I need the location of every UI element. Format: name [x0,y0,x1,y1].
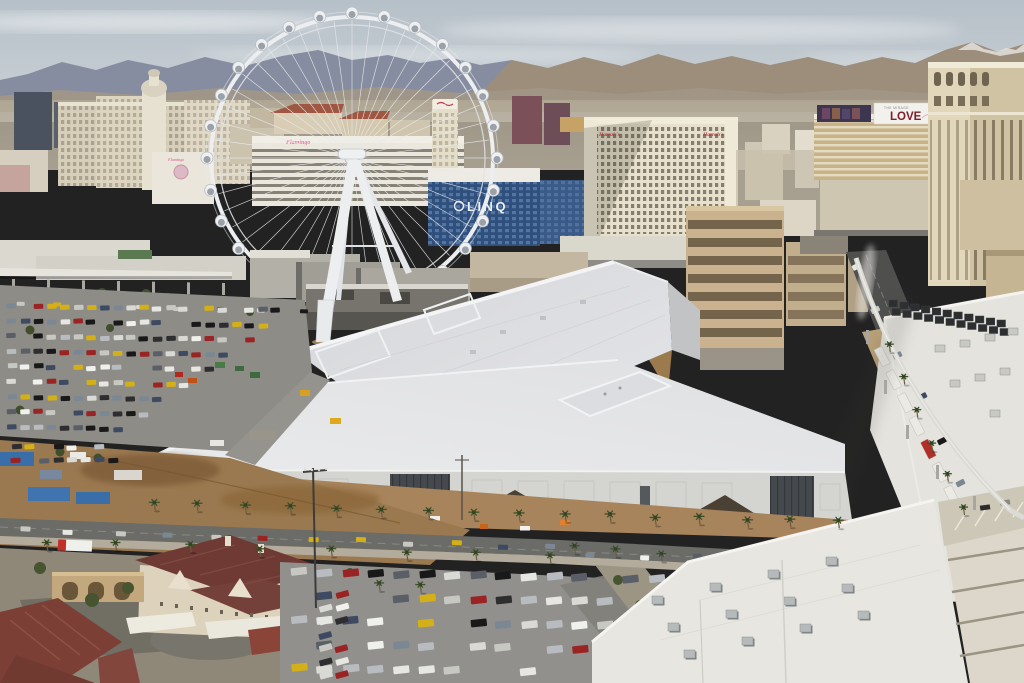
wheel-pod [215,215,227,227]
parked-car [179,383,189,388]
parked-car [33,409,43,414]
hvac-dark-unit [943,310,952,317]
parked-car [87,396,97,401]
parked-car [191,352,201,357]
parked-car [20,364,30,369]
wheel-pod [409,21,421,33]
parked-car [191,336,201,341]
vehicle [17,302,25,306]
hvac-dark-unit [997,320,1006,327]
parked-car [166,382,176,387]
vehicle [20,526,30,531]
parked-car [8,394,18,399]
parked-car [74,334,84,339]
parked-car [178,351,188,356]
parked-car [152,397,162,402]
vehicle [403,542,413,547]
aerial-photo-las-vegas-strip: Flamingo Flamingo LINQ [0,0,1024,683]
wheel-pod [256,39,268,51]
wheel-pod [378,11,390,23]
parked-car [7,349,17,354]
parked-car [34,363,44,368]
hvac-dark-unit [914,313,923,320]
parked-car [46,425,56,430]
hvac-dark-unit [986,318,995,325]
parked-car [61,396,71,401]
flamingo-heart-logo [174,165,188,179]
parked-car [113,320,123,325]
mirage-show-billboard [817,105,871,122]
parked-car [66,445,76,451]
parked-car [140,352,150,357]
hvac-box [710,583,723,593]
parked-car [205,322,215,327]
hvac-box [800,624,813,634]
parked-car [100,395,110,400]
parked-car [74,396,84,401]
parked-car [178,336,188,341]
vehicle [545,544,555,549]
parked-car [20,409,30,414]
hvac-dark-unit [978,325,987,332]
wheel-pod [215,89,227,101]
parked-car [61,335,71,340]
wheel-pod [487,120,499,132]
parked-car [126,351,136,356]
parked-car [54,457,64,463]
parked-car [33,349,43,354]
parked-car [191,366,201,371]
parked-car [152,306,162,311]
parked-car [178,307,188,312]
parked-car [166,336,176,341]
parked-car [7,424,17,429]
hvac-dark-unit [954,312,963,319]
hvac-box [684,650,697,660]
parked-car [8,363,18,368]
parked-car [114,335,124,340]
parked-car [7,409,17,414]
parked-car [153,337,163,342]
hvac-dark-unit [924,315,933,322]
parked-car [217,337,227,342]
parked-car [100,364,110,369]
hvac-box [668,623,681,633]
linq-hotel: LINQ [428,168,592,246]
parked-car [59,350,69,355]
vehicle [257,536,267,541]
parked-car [100,336,110,341]
parked-car [126,335,136,340]
parked-car [126,411,136,416]
parked-car [6,319,16,324]
parked-car [113,411,123,416]
parked-car [165,366,175,371]
vehicle [640,555,649,560]
guideway-column [152,282,155,294]
wheel-pod [283,21,295,33]
parked-car [60,305,70,310]
vehicle [585,553,594,558]
parked-car [73,318,83,323]
vehicle [356,537,366,542]
parked-car [86,350,96,355]
parked-car [259,323,269,328]
parked-car [39,458,49,464]
parked-car [47,304,57,309]
photo-canvas: Flamingo Flamingo LINQ [0,0,1024,683]
vehicle [300,309,308,313]
vehicle [62,530,72,535]
parked-car [85,319,95,324]
vehicle [452,540,462,545]
wheel-pod [436,39,448,51]
flamingo-wall-sign: Flamingo [168,157,184,162]
parked-car [86,425,96,430]
hvac-dark-unit [965,314,974,321]
hvac-box [652,596,665,606]
parked-car [74,305,84,310]
hvac-dark-unit [957,321,966,328]
wheel-pod [346,7,358,19]
parked-car [152,365,162,370]
parked-car [204,336,214,341]
parked-car [126,321,136,326]
hvac-dark-unit [975,316,984,323]
parked-car [73,425,83,430]
hvac-box [742,637,755,647]
hvac-dark-unit [932,308,941,315]
parked-car [204,367,214,372]
parked-car [258,307,268,312]
hvac-dark-unit [921,306,930,313]
parked-car [244,308,254,313]
parked-car [125,381,135,386]
parked-car [86,411,96,416]
parked-car [46,335,56,340]
the-mirage-sign: THE MIRAGE [884,106,909,110]
parked-car [113,351,123,356]
parked-car [153,382,163,387]
love-sign: LOVE [890,111,922,123]
hvac-dark-unit [989,327,998,334]
parked-car [74,350,84,355]
wheel-pod [201,152,213,164]
parked-car [60,426,70,431]
vehicle [116,531,126,536]
parked-car [100,305,110,310]
wheel-pod [233,62,245,74]
parked-car [47,379,57,384]
hvac-box [826,557,839,567]
parked-car [112,365,122,370]
parked-car [94,444,104,450]
parked-car [10,458,20,464]
parked-car [47,319,57,324]
parked-car [86,366,96,371]
parked-car [113,305,123,310]
wheel-pod [233,242,245,254]
parked-car [112,395,122,400]
wheel-pod [487,184,499,196]
parked-car [54,444,64,450]
hvac-dark-unit [1000,329,1009,336]
parked-car [108,458,118,464]
parked-car [217,308,227,313]
flamingo-roof-sign: Flamingo [286,140,310,146]
parked-car [33,379,43,384]
parked-car [6,333,16,338]
parked-car [165,351,175,356]
wheel-pod [459,242,471,254]
parked-car [47,395,57,400]
parked-car [46,410,56,415]
wheel-base-column [316,300,334,342]
parked-car [139,305,149,310]
parked-car [24,444,34,450]
parked-car [81,457,91,463]
parked-car [6,379,16,384]
vehicle [498,545,508,550]
parked-car [205,352,215,357]
box-truck [58,539,92,551]
parked-car [86,335,96,340]
parked-car [99,427,109,432]
parked-car [139,396,149,401]
parked-car [151,320,161,325]
guideway-column [187,282,190,294]
parked-car [94,457,104,463]
parked-car [87,380,97,385]
parked-car [6,303,16,308]
hvac-dark-unit [968,323,977,330]
parked-car [99,381,109,386]
parked-car [21,348,31,353]
parked-car [218,352,228,357]
hvac-box [768,570,781,580]
parked-car [140,319,150,324]
hvac-box [842,584,855,594]
wheel-pod [477,215,489,227]
parked-car [153,351,163,356]
harrahs-sign-right: Harrah's [702,132,724,138]
parked-car [232,322,242,327]
parked-car [34,425,44,430]
parked-car [20,425,30,430]
hvac-dark-unit [935,317,944,324]
parked-car [245,337,255,342]
parked-car [219,323,229,328]
guideway-column [222,283,225,295]
vehicle [162,532,172,537]
parked-car [12,444,22,450]
wheel-pod [477,89,489,101]
parked-car [67,457,77,463]
parked-car [46,349,56,354]
parked-car [113,427,123,432]
hvac-box [858,611,871,621]
parked-car [100,411,110,416]
harrahs-sign-left: Harrah's [598,132,620,138]
wheel-pod [314,11,326,23]
parked-car [34,304,44,309]
hvac-dark-unit [946,319,955,326]
parked-car [33,333,43,338]
parked-car [74,410,84,415]
parked-car [59,380,69,385]
parked-car [204,306,214,311]
wheel-pod [459,62,471,74]
parked-car [125,396,135,401]
parked-car [114,380,124,385]
parked-car [34,319,44,324]
parked-car [61,319,71,324]
parked-car [166,305,176,310]
wheel-pod [205,120,217,132]
parked-car [21,318,31,323]
parked-car [138,336,148,341]
parked-car [244,323,254,328]
parked-car [34,395,44,400]
hvac-box [784,597,797,607]
parked-car [270,307,280,312]
parked-car [20,394,30,399]
parked-car [73,365,83,370]
wheel-pod [491,152,503,164]
parked-car [139,412,149,417]
parked-car [126,305,136,310]
hvac-box [726,610,739,620]
parked-car [191,322,201,327]
parked-car [100,350,110,355]
parked-car [46,365,56,370]
wheel-pod [205,184,217,196]
parked-car [87,305,97,310]
